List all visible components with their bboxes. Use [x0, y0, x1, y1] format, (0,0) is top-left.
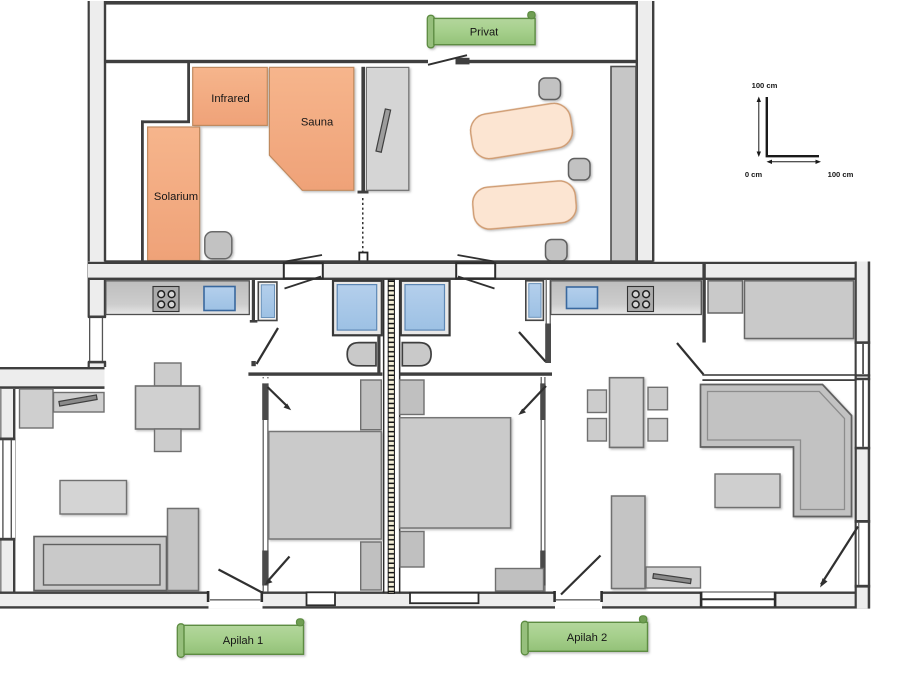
- svg-text:100 cm: 100 cm: [752, 81, 778, 90]
- svg-text:Apilah 1: Apilah 1: [223, 635, 263, 647]
- svg-text:Privat: Privat: [470, 27, 499, 39]
- svg-text:Solarium: Solarium: [154, 191, 198, 203]
- svg-text:Infrared: Infrared: [211, 93, 250, 105]
- svg-text:0 cm: 0 cm: [745, 170, 763, 179]
- svg-text:100 cm: 100 cm: [828, 170, 854, 179]
- svg-text:Sauna: Sauna: [301, 116, 334, 128]
- svg-text:Apilah 2: Apilah 2: [567, 632, 607, 644]
